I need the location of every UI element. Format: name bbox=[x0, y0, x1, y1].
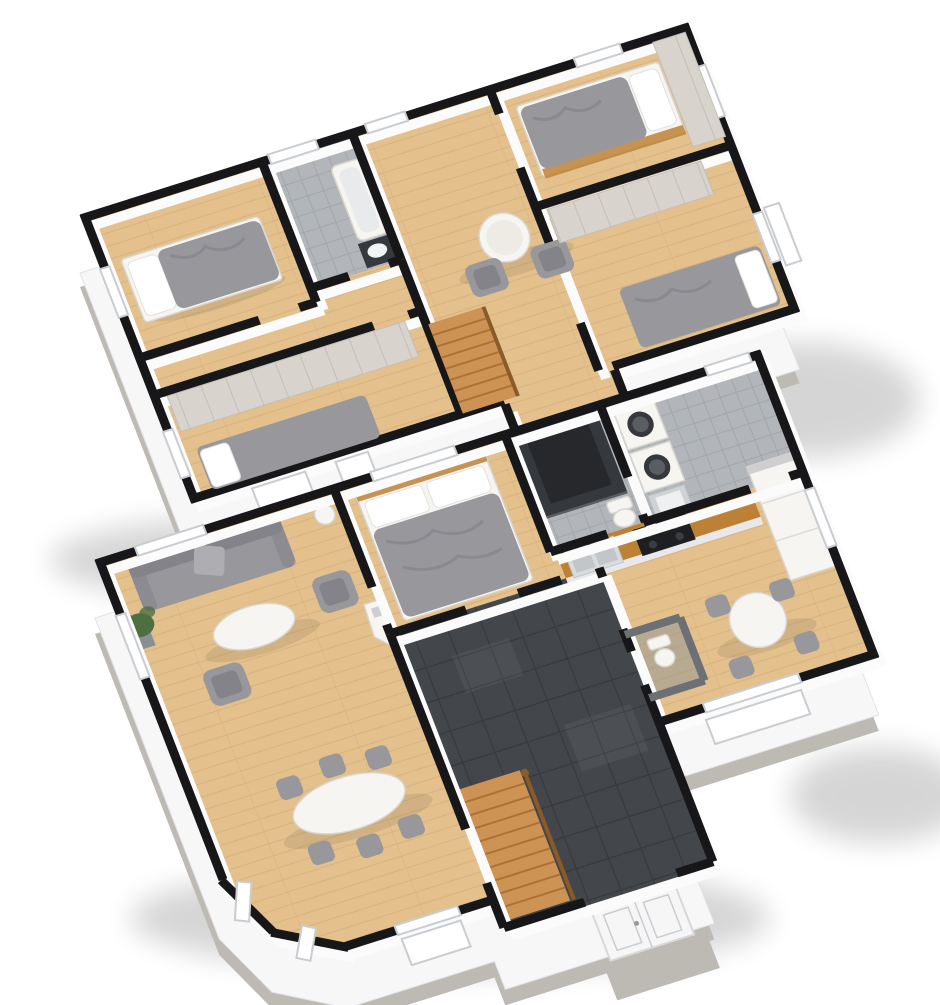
throw-pillow bbox=[194, 545, 225, 576]
bay-window bbox=[235, 881, 252, 921]
ground-floor-shadow-right bbox=[790, 747, 940, 843]
floor-plan-render bbox=[0, 0, 940, 1005]
floor-plan-scene bbox=[0, 0, 940, 1005]
